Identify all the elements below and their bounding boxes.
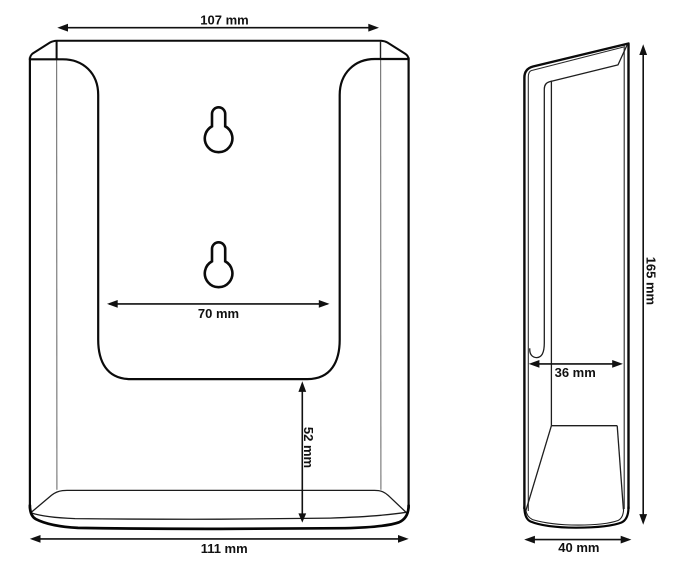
svg-text:111 mm: 111 mm [201, 541, 248, 556]
svg-text:70 mm: 70 mm [198, 306, 239, 321]
svg-text:165 mm: 165 mm [643, 257, 658, 305]
svg-text:40 mm: 40 mm [558, 540, 599, 555]
svg-text:107 mm: 107 mm [200, 13, 248, 28]
svg-text:52 mm: 52 mm [301, 427, 316, 468]
svg-text:36 mm: 36 mm [555, 365, 596, 380]
